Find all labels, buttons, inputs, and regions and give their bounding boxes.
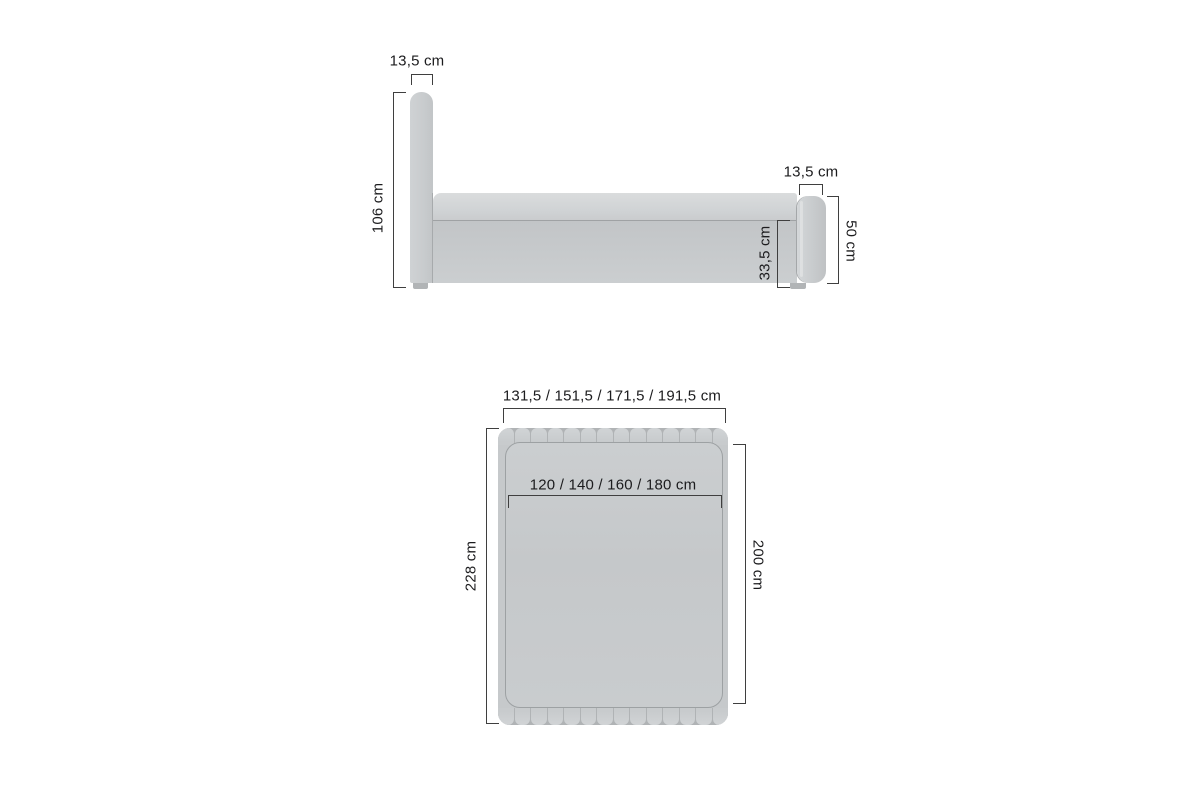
dim-frame-height-tick-top (777, 220, 790, 221)
dim-headboard-width-bracket (411, 74, 433, 85)
scallop-segment (498, 708, 514, 725)
dim-mattress-length-label: 200 cm (750, 540, 767, 590)
bed-frame-side-profile (433, 220, 797, 283)
dim-frame-height-tick-bottom (777, 287, 790, 288)
scallop-segment (663, 708, 679, 725)
mattress-side-profile (433, 193, 797, 220)
dim-mattress-width-label: 120 / 140 / 160 / 180 cm (530, 477, 697, 494)
dim-mattress-width-tick-right (721, 495, 722, 508)
dim-frame-height-line (777, 220, 778, 288)
bed-dimensions-diagram: 13,5 cm 106 cm 13,5 cm 50 cm 33,5 cm 131… (0, 0, 1200, 800)
dim-mattress-length-line (745, 444, 746, 704)
scallop-segment (713, 708, 729, 725)
dim-headboard-height-tick-top (393, 92, 406, 93)
scallop-segment (680, 708, 696, 725)
headboard-leg (413, 283, 428, 289)
scallop-segment (696, 708, 712, 725)
dim-overall-width-label: 131,5 / 151,5 / 171,5 / 191,5 cm (503, 388, 721, 405)
dim-mattress-length-tick-top (733, 444, 746, 445)
dim-mattress-width-line (508, 495, 722, 496)
dim-headboard-height-line (393, 92, 394, 288)
footboard-highlight (800, 201, 803, 277)
dim-headboard-height-tick-bottom (393, 287, 406, 288)
scallop-segment (564, 708, 580, 725)
scallop-segment (515, 708, 531, 725)
dim-footboard-height-label: 50 cm (843, 220, 860, 262)
scallop-segment (647, 708, 663, 725)
dim-overall-length-tick-bottom (486, 723, 499, 724)
scallop-segment (630, 708, 646, 725)
scallop-segment (498, 428, 514, 445)
scallop-segment (531, 708, 547, 725)
dim-footboard-height-tick-top (827, 196, 838, 197)
dim-frame-height-label: 33,5 cm (757, 226, 774, 281)
dim-overall-length-line (486, 428, 487, 724)
dim-overall-length-label: 228 cm (463, 541, 480, 591)
dim-headboard-height-label: 106 cm (370, 183, 387, 233)
dim-overall-length-tick-top (486, 428, 499, 429)
footboard-side-profile (797, 196, 826, 283)
footboard-top-view (498, 708, 728, 725)
scallop-segment (548, 708, 564, 725)
scallop-segment (597, 708, 613, 725)
dim-footboard-height-line (838, 196, 839, 284)
dim-footboard-width-label: 13,5 cm (784, 164, 839, 181)
dim-footboard-width-bracket (799, 184, 823, 195)
scallop-segment (581, 708, 597, 725)
footboard-leg (790, 283, 806, 289)
scallop-segment (713, 428, 729, 445)
dim-headboard-width-label: 13,5 cm (390, 53, 445, 70)
scallop-segment (614, 708, 630, 725)
dim-footboard-height-tick-bottom (827, 283, 838, 284)
dim-mattress-length-tick-bottom (733, 703, 746, 704)
headboard-side-profile (410, 92, 433, 283)
dim-mattress-width-tick-left (508, 495, 509, 508)
dim-overall-width-bracket (503, 408, 726, 423)
